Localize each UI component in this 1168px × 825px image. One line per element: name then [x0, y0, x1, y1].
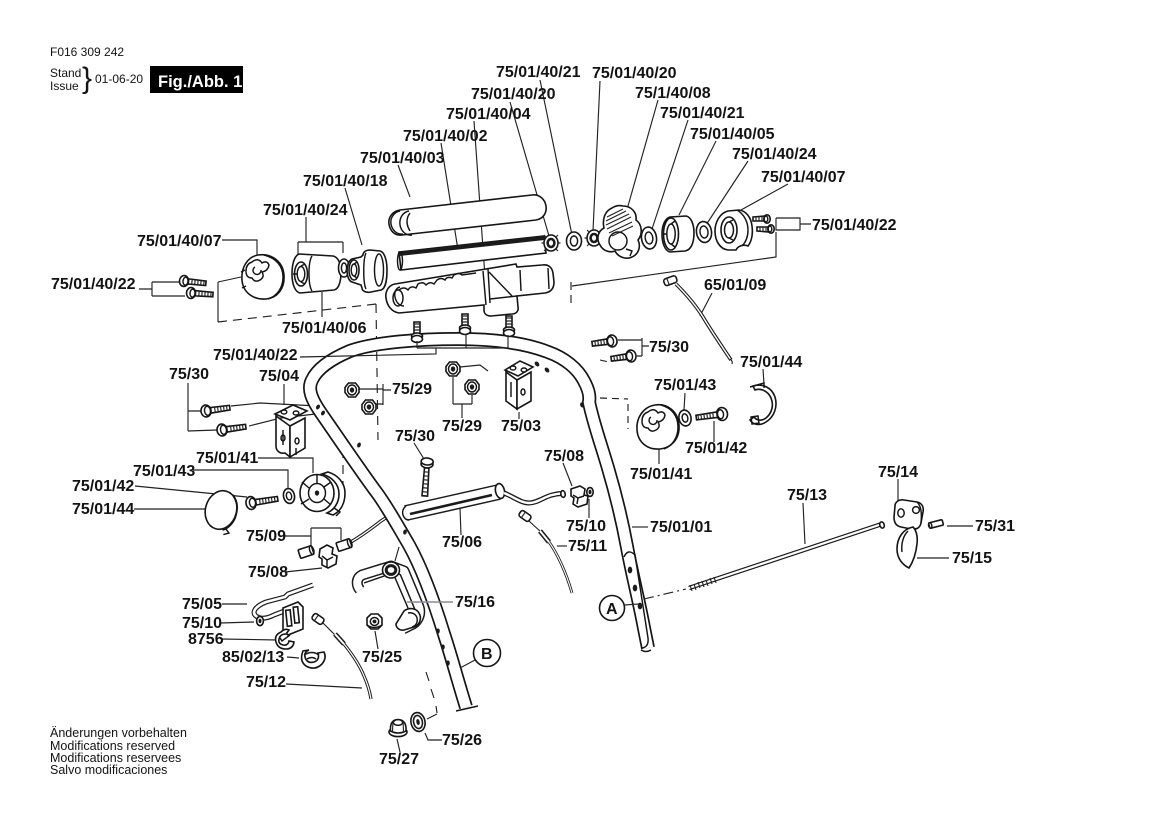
svg-text:75/25: 75/25	[362, 649, 402, 666]
svg-text:75/05: 75/05	[182, 596, 222, 613]
svg-text:75/01/42: 75/01/42	[72, 478, 134, 495]
svg-text:Fig./Abb. 1: Fig./Abb. 1	[158, 73, 242, 91]
svg-text:75/27: 75/27	[379, 751, 419, 768]
svg-text:75/30: 75/30	[169, 366, 209, 383]
svg-text:75/04: 75/04	[259, 368, 299, 385]
svg-text:01-06-20: 01-06-20	[95, 72, 143, 86]
svg-text:75/01/40/03: 75/01/40/03	[360, 150, 445, 167]
svg-text:75/01/40/02: 75/01/40/02	[403, 128, 488, 145]
svg-text:75/01/40/21: 75/01/40/21	[660, 105, 745, 122]
svg-text:75/08: 75/08	[248, 564, 288, 581]
svg-text:75/01/43: 75/01/43	[654, 377, 716, 394]
svg-text:75/13: 75/13	[787, 487, 827, 504]
svg-text:75/01/41: 75/01/41	[630, 466, 692, 483]
svg-text:75/01/40/05: 75/01/40/05	[690, 126, 775, 143]
svg-text:Änderungen vorbehalten: Änderungen vorbehalten	[50, 726, 187, 740]
svg-text:}: }	[82, 62, 92, 95]
svg-text:75/01/40/21: 75/01/40/21	[496, 64, 581, 81]
svg-text:75/29: 75/29	[392, 381, 432, 398]
svg-text:85/02/13: 85/02/13	[222, 649, 284, 666]
svg-text:75/10: 75/10	[566, 518, 606, 535]
svg-text:75/29: 75/29	[442, 418, 482, 435]
svg-text:75/01/40/07: 75/01/40/07	[761, 169, 846, 186]
svg-text:75/26: 75/26	[442, 732, 482, 749]
svg-text:75/01/40/20: 75/01/40/20	[592, 65, 677, 82]
svg-text:75/03: 75/03	[501, 418, 541, 435]
svg-text:8756: 8756	[188, 631, 224, 648]
svg-text:75/01/42: 75/01/42	[685, 440, 747, 457]
svg-text:75/01/40/22: 75/01/40/22	[51, 276, 136, 293]
svg-text:75/01/40/20: 75/01/40/20	[471, 86, 556, 103]
svg-text:B: B	[481, 646, 493, 663]
svg-text:75/01/44: 75/01/44	[740, 354, 802, 371]
svg-text:75/01/40/24: 75/01/40/24	[732, 146, 817, 163]
svg-text:F016 309 242: F016 309 242	[50, 45, 124, 59]
svg-text:Stand: Stand	[50, 66, 81, 80]
svg-text:75/01/40/22: 75/01/40/22	[213, 347, 298, 364]
svg-text:75/16: 75/16	[455, 594, 495, 611]
svg-text:75/30: 75/30	[395, 428, 435, 445]
svg-text:75/31: 75/31	[975, 518, 1015, 535]
svg-text:75/01/43: 75/01/43	[133, 463, 195, 480]
svg-text:75/08: 75/08	[544, 448, 584, 465]
svg-text:75/01/40/24: 75/01/40/24	[263, 202, 348, 219]
svg-text:75/01/40/18: 75/01/40/18	[303, 173, 388, 190]
svg-text:75/09: 75/09	[246, 528, 286, 545]
svg-text:65/01/09: 65/01/09	[704, 277, 766, 294]
svg-text:75/01/40/04: 75/01/40/04	[446, 106, 531, 123]
svg-text:75/01/01: 75/01/01	[650, 519, 712, 536]
svg-text:75/11: 75/11	[568, 538, 607, 555]
svg-text:75/01/41: 75/01/41	[196, 450, 258, 467]
svg-text:75/01/40/07: 75/01/40/07	[137, 233, 222, 250]
svg-text:75/12: 75/12	[246, 674, 286, 691]
svg-text:Salvo modificaciones: Salvo modificaciones	[50, 763, 167, 777]
svg-text:75/15: 75/15	[952, 550, 992, 567]
svg-text:75/01/40/06: 75/01/40/06	[282, 320, 367, 337]
svg-text:75/14: 75/14	[878, 464, 918, 481]
svg-text:75/1/40/08: 75/1/40/08	[635, 85, 711, 102]
svg-text:75/01/40/22: 75/01/40/22	[812, 217, 897, 234]
svg-text:75/30: 75/30	[649, 339, 689, 356]
svg-text:75/10: 75/10	[182, 615, 222, 632]
svg-text:75/06: 75/06	[442, 534, 482, 551]
svg-text:75/01/44: 75/01/44	[72, 501, 134, 518]
svg-text:A: A	[606, 601, 618, 618]
svg-text:Issue: Issue	[50, 79, 79, 93]
